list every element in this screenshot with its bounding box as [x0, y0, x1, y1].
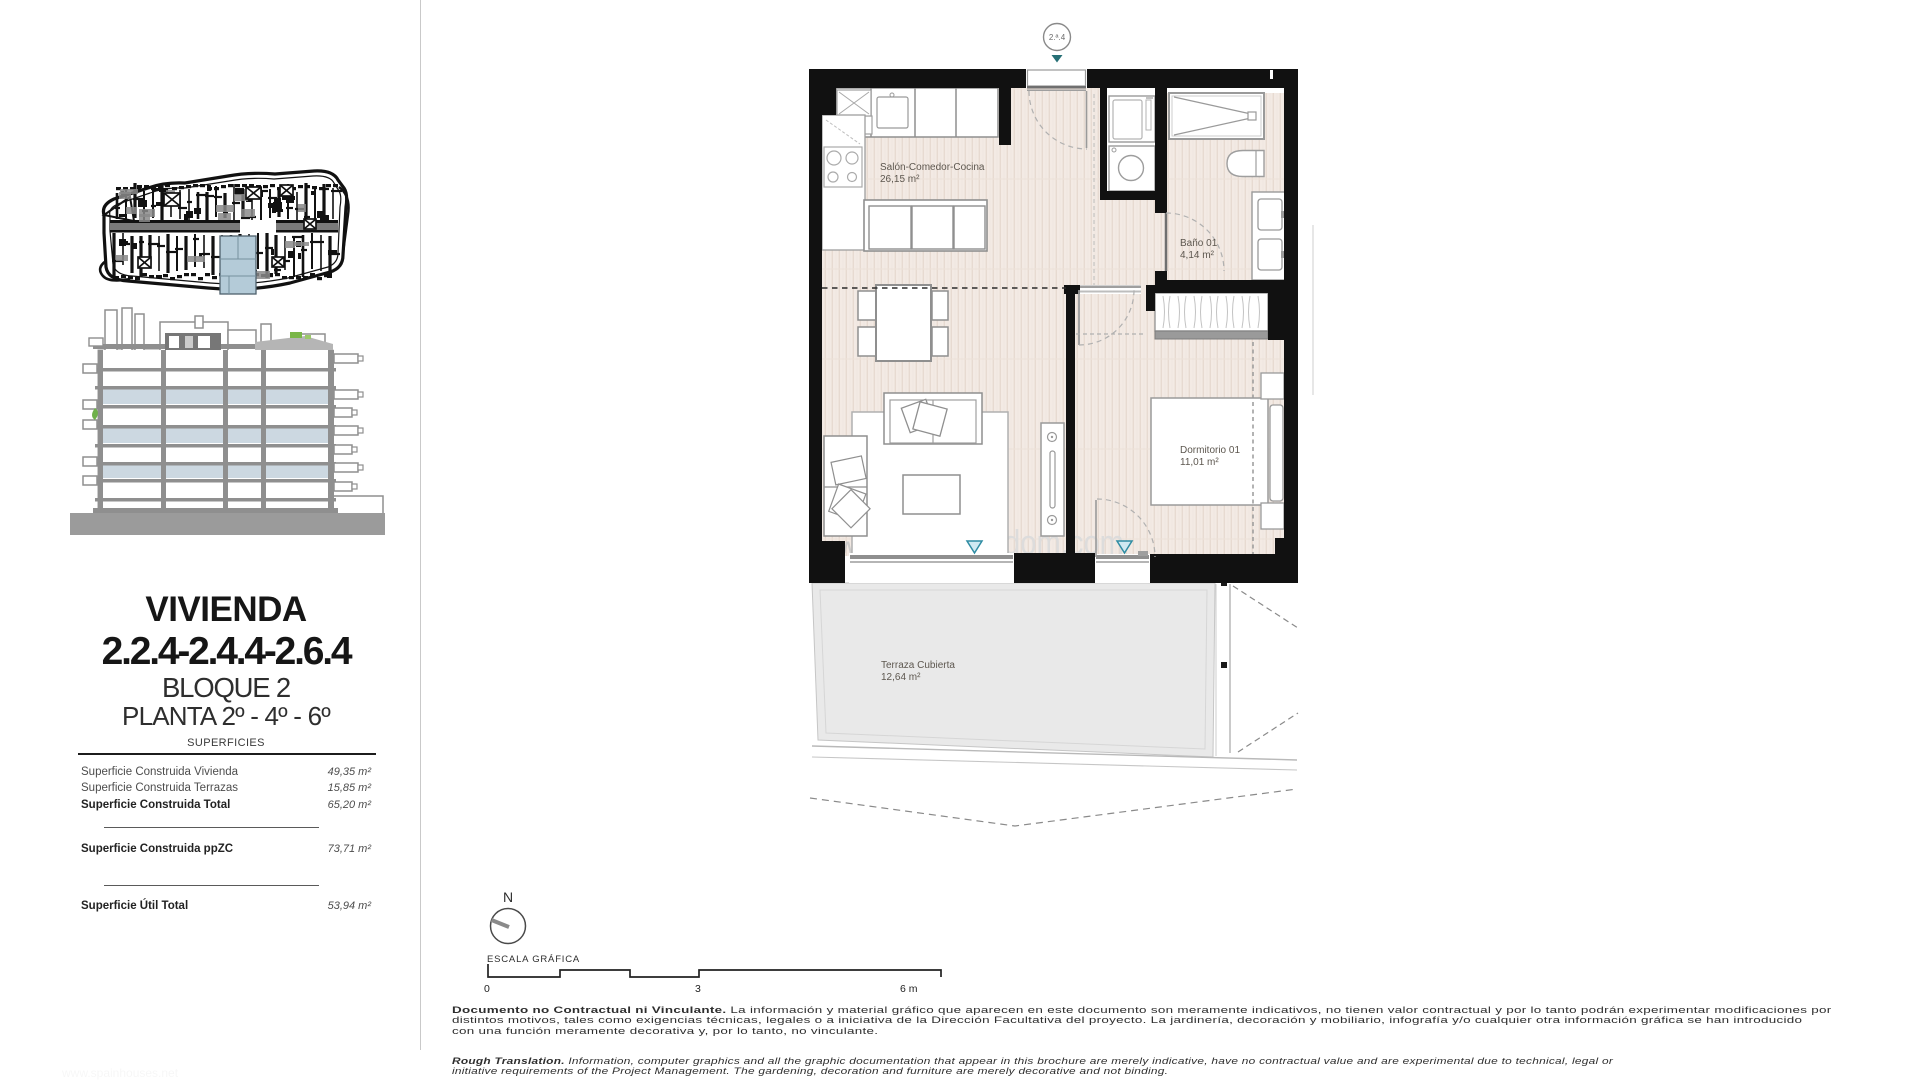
- svg-text:ESCALA GRÁFICA: ESCALA GRÁFICA: [487, 954, 580, 965]
- svg-text:26,15 m²: 26,15 m²: [880, 174, 920, 185]
- svg-text:6 m: 6 m: [900, 983, 918, 995]
- svg-text:Baño 01: Baño 01: [1180, 238, 1218, 249]
- svg-text:Dormitorio 01: Dormitorio 01: [1180, 445, 1240, 456]
- svg-text:11,01 m²: 11,01 m²: [1180, 457, 1219, 468]
- svg-text:0: 0: [484, 983, 490, 995]
- svg-text:12,64 m²: 12,64 m²: [881, 672, 921, 683]
- svg-text:3: 3: [695, 983, 701, 995]
- svg-text:N: N: [503, 889, 513, 905]
- svg-text:2.ª.4: 2.ª.4: [1049, 33, 1066, 42]
- svg-text:4,14 m²: 4,14 m²: [1180, 250, 1215, 261]
- svg-text:Salón-Comedor-Cocina: Salón-Comedor-Cocina: [880, 162, 985, 173]
- svg-text:Terraza Cubierta: Terraza Cubierta: [881, 660, 955, 671]
